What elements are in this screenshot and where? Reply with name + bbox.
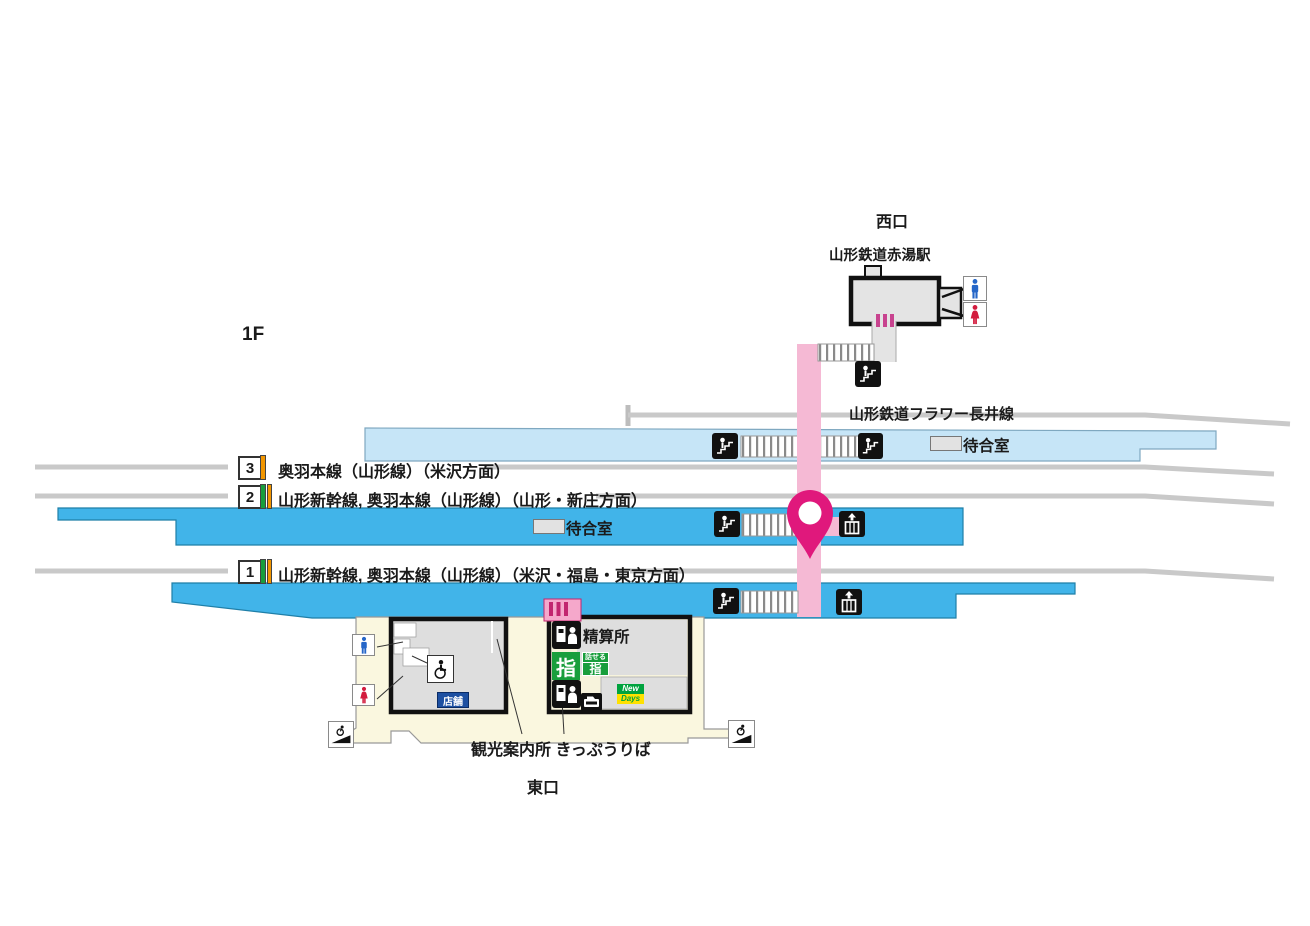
waiting-room-box bbox=[533, 519, 565, 534]
certificate-machine-icon bbox=[581, 693, 602, 711]
elevator-icon bbox=[836, 589, 862, 615]
shop-label: 店舗 bbox=[437, 692, 469, 708]
east-exit-label: 東口 bbox=[527, 774, 559, 798]
west-corridor bbox=[872, 321, 896, 362]
location-pin-icon bbox=[780, 484, 840, 564]
route-corridor bbox=[797, 344, 821, 617]
escalator-icon bbox=[712, 433, 738, 459]
talkable-reserved-seat-machine-sign: 話せる 指 bbox=[582, 652, 609, 676]
accessible-toilet-icon bbox=[427, 655, 454, 683]
male-toilet-icon bbox=[352, 634, 375, 656]
station-map-base bbox=[0, 0, 1310, 926]
escalator-icon bbox=[855, 361, 881, 387]
line-color-orange bbox=[267, 559, 273, 584]
wheelchair-ramp-icon bbox=[328, 721, 354, 748]
west-exit-building bbox=[818, 266, 964, 362]
stairs-icon bbox=[714, 511, 740, 537]
line-color-orange bbox=[267, 484, 273, 509]
stairs-icon bbox=[713, 588, 739, 614]
fare-adjustment-machine-icon bbox=[552, 621, 581, 649]
west-ticket-gate-icon bbox=[876, 314, 880, 327]
reserved-seat-machine-sign: 指 bbox=[552, 652, 580, 680]
newdays-logo: New Days bbox=[617, 684, 644, 704]
station-floor-map: 1F 西口 山形鉄道赤湯駅 山形鉄道フラワー長井線 3 奥羽本線（山形線）（米沢… bbox=[0, 0, 1310, 926]
waiting-room-label: 待合室 bbox=[963, 434, 1010, 456]
escalator-icon bbox=[858, 433, 883, 459]
female-toilet-icon bbox=[352, 684, 375, 706]
platform-number-3: 3 bbox=[238, 456, 262, 480]
west-ticket-gate-icon bbox=[890, 314, 894, 327]
track2-lines-label: 山形新幹線, 奥羽本線（山形線）（山形・新庄方面） bbox=[278, 487, 647, 511]
wheelchair-ramp-icon bbox=[728, 720, 755, 748]
track-3 bbox=[35, 467, 1274, 474]
floor-label: 1F bbox=[242, 324, 264, 346]
male-toilet-icon bbox=[963, 276, 987, 301]
talkable-seat-label: 指 bbox=[583, 663, 608, 676]
west-exit-label: 西口 bbox=[876, 208, 908, 232]
elevator-icon bbox=[839, 511, 865, 537]
female-toilet-icon bbox=[963, 302, 987, 327]
track3-lines-label: 奥羽本線（山形線）（米沢方面） bbox=[278, 458, 510, 482]
platform-number-2: 2 bbox=[238, 485, 262, 509]
platform1-stairs bbox=[741, 591, 798, 613]
newdays-bottom: Days bbox=[617, 694, 644, 704]
newdays-top: New bbox=[617, 684, 644, 694]
ticket-machine-icon bbox=[552, 680, 581, 708]
ticket-gate-icon bbox=[544, 599, 581, 621]
tourist-info-tickets-label: 観光案内所 きっぷうりば bbox=[471, 736, 651, 760]
line-color-green bbox=[260, 484, 266, 509]
track1-lines-label: 山形新幹線, 奥羽本線（山形線）（米沢・福島・東京方面） bbox=[278, 562, 695, 586]
line-color-orange bbox=[260, 455, 266, 480]
platform-1 bbox=[172, 583, 1075, 618]
waiting-room-label: 待合室 bbox=[566, 517, 613, 539]
west-stairs bbox=[818, 344, 874, 361]
flower-line-name: 山形鉄道フラワー長井線 bbox=[849, 403, 1014, 424]
west-ticket-gate-icon bbox=[883, 314, 887, 327]
platform-number-1: 1 bbox=[238, 560, 262, 584]
waiting-room-box bbox=[930, 436, 962, 451]
west-station-name: 山形鉄道赤湯駅 bbox=[829, 244, 931, 265]
fare-adjustment-label: 精算所 bbox=[583, 625, 630, 647]
track-2 bbox=[35, 496, 1274, 504]
line-color-green bbox=[260, 559, 266, 584]
